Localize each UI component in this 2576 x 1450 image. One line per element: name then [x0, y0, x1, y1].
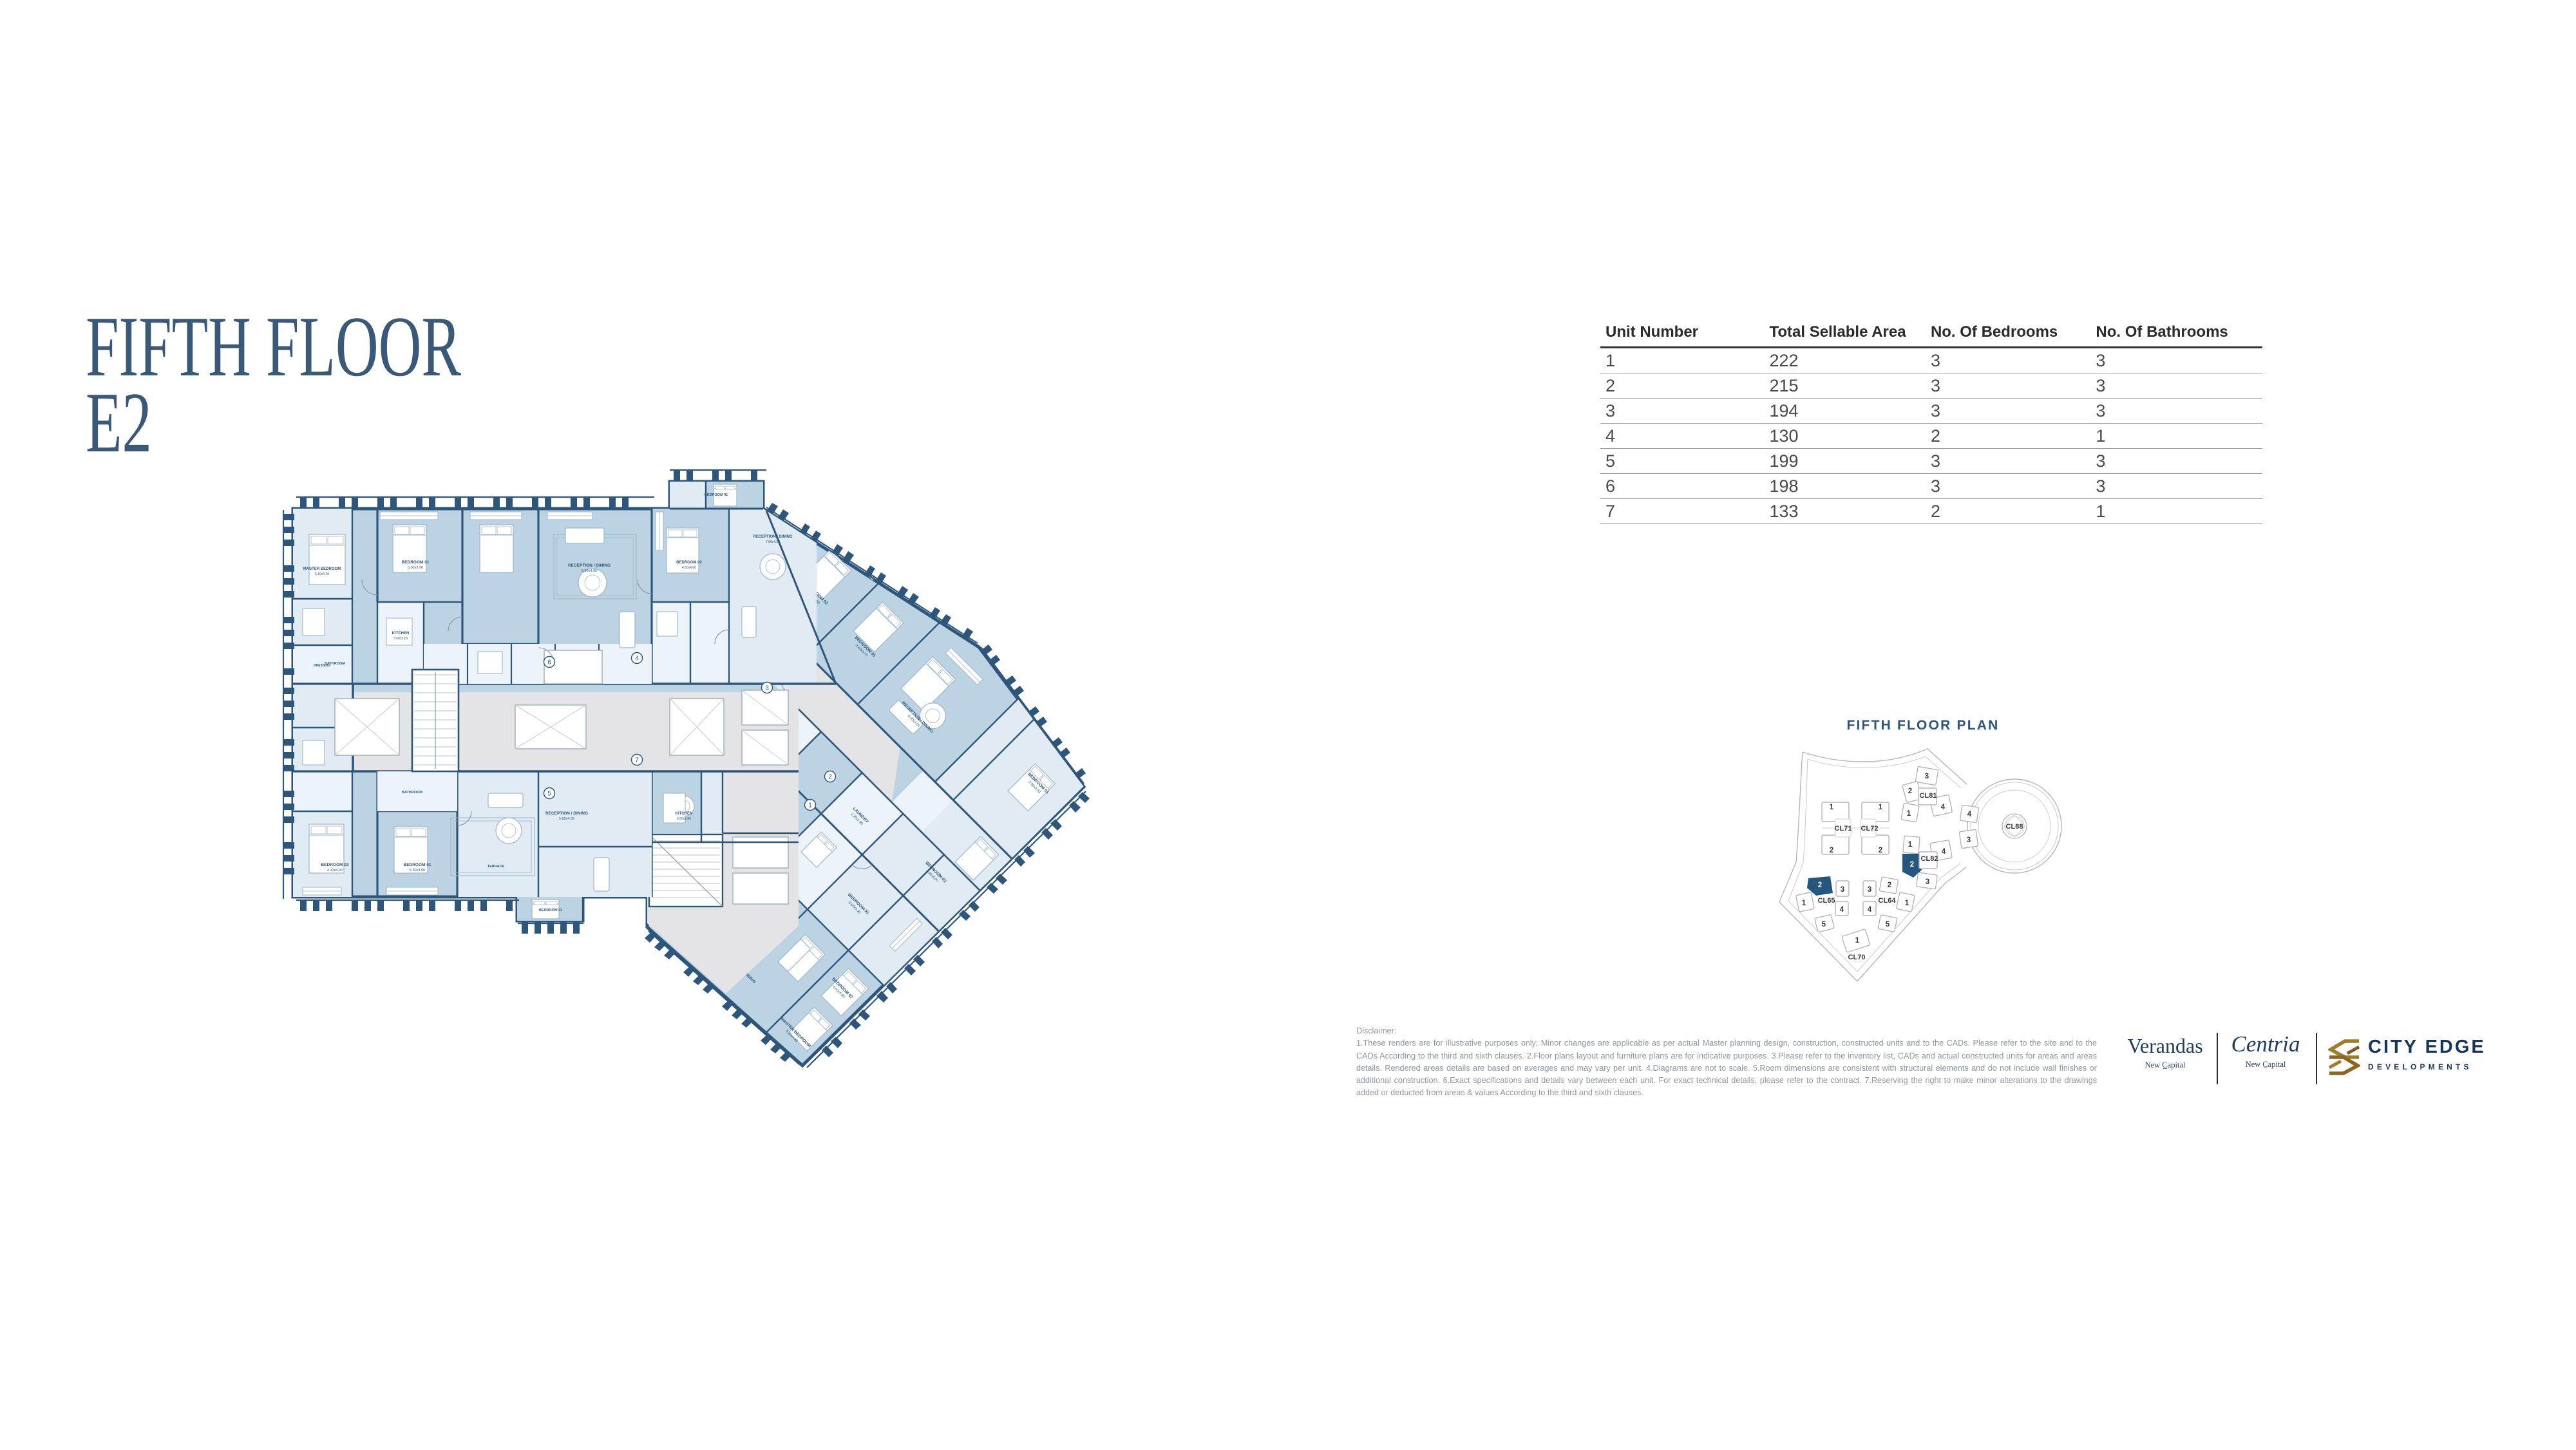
svg-text:1: 1	[1879, 804, 1883, 811]
svg-text:CL72: CL72	[1861, 825, 1879, 833]
svg-text:2: 2	[1830, 847, 1833, 854]
svg-text:BEDROOM 01: BEDROOM 01	[404, 863, 431, 867]
svg-text:1: 1	[1830, 804, 1834, 811]
svg-text:6: 6	[547, 659, 551, 666]
svg-text:4.60x4.60: 4.60x4.60	[682, 566, 696, 570]
svg-text:5: 5	[547, 791, 551, 798]
svg-text:5.30x3.90: 5.30x3.90	[408, 566, 423, 570]
svg-text:DRESSING: DRESSING	[314, 664, 330, 668]
svg-text:RECEPTION / DINING: RECEPTION / DINING	[753, 535, 792, 539]
svg-text:CL65: CL65	[1818, 897, 1835, 905]
svg-text:2: 2	[1908, 787, 1912, 795]
svg-text:5: 5	[1886, 921, 1890, 928]
svg-text:4: 4	[1941, 804, 1946, 811]
svg-text:7.80x4.10: 7.80x4.10	[766, 540, 780, 544]
svg-text:3: 3	[1926, 878, 1929, 886]
svg-text:1: 1	[808, 802, 812, 809]
svg-text:4.10x4.00: 4.10x4.00	[327, 869, 343, 872]
svg-text:2: 2	[828, 774, 832, 781]
svg-text:RECEPTION / DINING: RECEPTION / DINING	[545, 811, 588, 816]
svg-text:BEDROOM 01: BEDROOM 01	[402, 560, 430, 565]
svg-text:BEDROOM 01: BEDROOM 01	[705, 493, 728, 497]
svg-text:BEDROOM 02: BEDROOM 02	[676, 561, 702, 565]
svg-text:1: 1	[1802, 899, 1806, 907]
svg-text:5.50x4.65: 5.50x4.65	[559, 817, 574, 821]
svg-text:7: 7	[635, 757, 639, 764]
svg-text:4: 4	[1942, 848, 1946, 856]
svg-text:5: 5	[1822, 921, 1826, 928]
svg-text:BEDROOM 02: BEDROOM 02	[321, 863, 349, 867]
svg-text:3: 3	[1841, 886, 1844, 894]
svg-text:4: 4	[1967, 811, 1972, 818]
svg-text:CL70: CL70	[1848, 954, 1866, 961]
svg-text:3: 3	[1868, 886, 1871, 894]
svg-text:RECEPTION / DINING: RECEPTION / DINING	[568, 563, 611, 568]
svg-text:BEDROOM 01: BEDROOM 01	[539, 909, 562, 912]
svg-text:2: 2	[1910, 861, 1914, 869]
svg-text:5.30x3.90: 5.30x3.90	[410, 869, 425, 872]
svg-text:4: 4	[1868, 906, 1872, 914]
svg-text:3.60x3.20: 3.60x3.20	[393, 637, 408, 641]
svg-text:3: 3	[765, 685, 769, 692]
svg-text:1: 1	[1905, 899, 1909, 907]
svg-text:BATHROOM: BATHROOM	[402, 791, 422, 795]
svg-text:TERRACE: TERRACE	[488, 865, 505, 869]
svg-text:2: 2	[1888, 881, 1891, 889]
svg-text:1: 1	[1855, 937, 1860, 945]
svg-text:2: 2	[1879, 847, 1882, 854]
svg-text:CL88: CL88	[2006, 823, 2023, 831]
svg-text:5.50x4.65: 5.50x4.65	[582, 569, 597, 573]
svg-text:2: 2	[1818, 881, 1822, 889]
svg-text:CL64: CL64	[1879, 897, 1897, 905]
svg-text:1: 1	[1908, 841, 1913, 849]
svg-text:3: 3	[1925, 773, 1929, 780]
svg-text:4: 4	[1840, 906, 1844, 914]
svg-text:MASTER BEDROOM: MASTER BEDROOM	[303, 567, 341, 571]
svg-text:4: 4	[635, 655, 639, 663]
svg-text:CL81: CL81	[1920, 792, 1937, 800]
svg-text:3: 3	[1967, 836, 1971, 844]
svg-text:KITCHEN: KITCHEN	[392, 632, 410, 636]
svg-text:5.50x2.60: 5.50x2.60	[677, 817, 691, 821]
svg-text:1: 1	[1907, 810, 1911, 818]
svg-text:CL71: CL71	[1835, 825, 1852, 833]
svg-text:KITCHEN: KITCHEN	[676, 812, 693, 816]
svg-text:5.10x4.10: 5.10x4.10	[315, 572, 329, 576]
svg-text:CL82: CL82	[1921, 855, 1938, 863]
